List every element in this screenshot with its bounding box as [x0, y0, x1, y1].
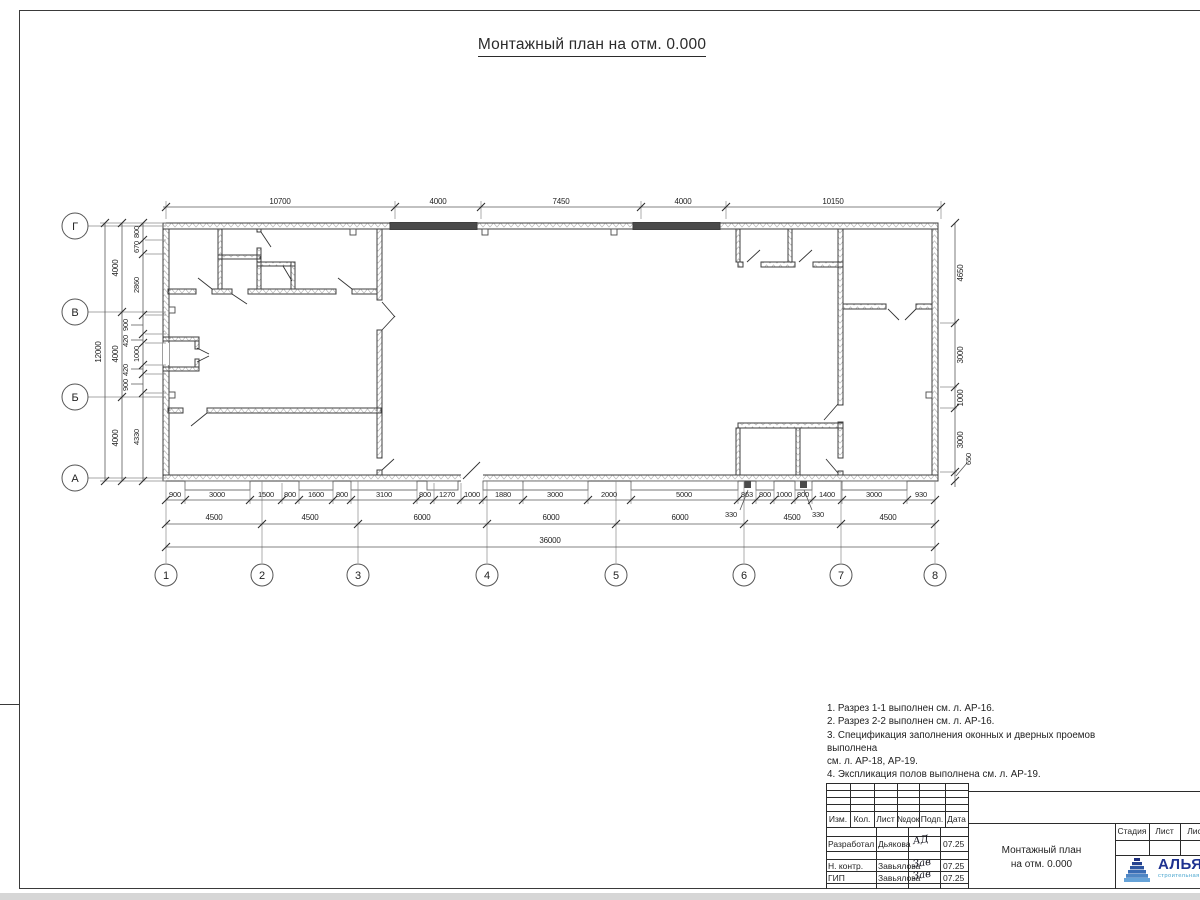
dim-label: 6000 [414, 513, 432, 522]
tb-line [826, 871, 968, 872]
dim-label: 863 [741, 490, 753, 499]
dim-label: 5000 [676, 490, 692, 499]
axis-label: 4 [484, 570, 490, 582]
column-marker [611, 229, 617, 235]
note-line: 1. Разрез 1-1 выполнен см. л. АР-16. [827, 702, 1117, 715]
dim-label: 1000 [776, 490, 792, 499]
dim-label: 900 [121, 379, 130, 391]
gate-opening [633, 223, 720, 230]
tb-sheets: Листов [1180, 826, 1200, 836]
tb-stage: Стадия [1115, 826, 1149, 836]
dim-label: 1270 [439, 490, 455, 499]
dim-label: 800 [132, 226, 141, 238]
logo-subtitle: строительная компания [1158, 873, 1200, 879]
tb-header-podp: Подп. [919, 814, 945, 824]
axis-label: Г [72, 221, 78, 233]
tb-role: ГИП [828, 873, 845, 883]
signature: АД [912, 834, 929, 847]
gate-opening [390, 223, 477, 230]
dim-label: 3000 [956, 346, 965, 364]
tb-header-list: Лист [874, 814, 897, 824]
dim-label: 4500 [302, 513, 320, 522]
dim-label: 420 [121, 364, 130, 376]
tb-name: Дьякова [878, 839, 910, 849]
axis-label: Б [71, 392, 78, 404]
dim-label: 10150 [822, 197, 844, 206]
column-marker [169, 307, 175, 313]
dim-label: 800 [336, 490, 348, 499]
dim-label: 4500 [880, 513, 898, 522]
dim-label: 12000 [94, 341, 103, 363]
column-marker [926, 392, 932, 398]
dim-label: 6000 [543, 513, 561, 522]
dim-label: 36000 [539, 536, 561, 545]
tb-date: 07.25 [943, 873, 964, 883]
tb-line [826, 827, 968, 828]
dim-label: 3000 [209, 490, 225, 499]
column-marker [482, 229, 488, 235]
dim-label: 1600 [308, 490, 324, 499]
dim-label: 1000 [464, 490, 480, 499]
tb-line [876, 827, 877, 889]
general-notes: 1. Разрез 1-1 выполнен см. л. АР-16. 2. … [827, 702, 1117, 782]
note-line: 2. Разрез 2-2 выполнен см. л. АР-16. [827, 715, 1117, 728]
tb-doc-title-line1: Монтажный план [968, 844, 1115, 858]
dim-label: 6000 [672, 513, 690, 522]
dim-label: 900 [121, 319, 130, 331]
column-marker [350, 229, 356, 235]
note-line: 3. Спецификация заполнения оконных и две… [827, 729, 1117, 756]
axis-label: 1 [163, 570, 169, 582]
tb-line [826, 859, 968, 860]
dim-label: 4650 [956, 264, 965, 282]
tb-doc-title: Монтажный план на отм. 0.000 [968, 844, 1115, 872]
column-marker [169, 392, 175, 398]
dim-label: 4000 [430, 197, 448, 206]
tb-line [826, 883, 968, 884]
dim-label: 4500 [784, 513, 802, 522]
dim-label: 2000 [601, 490, 617, 499]
dim-label: 3000 [547, 490, 563, 499]
dim-label: 420 [121, 335, 130, 347]
axis-label: В [71, 307, 78, 319]
tb-line [968, 791, 1200, 792]
tb-line [1115, 840, 1200, 841]
dim-label: 1000 [956, 389, 965, 407]
logo-triangle-icon [1122, 856, 1152, 886]
company-logo: АЛЬЯНС строительная компания [1122, 856, 1200, 886]
note-line: см. л. АР-18, АР-19. [827, 755, 1117, 768]
axis-label: 2 [259, 570, 265, 582]
dim-label: 2860 [132, 277, 141, 293]
axis-label: 5 [613, 570, 619, 582]
tb-header-kol: Кол. [850, 814, 874, 824]
tb-sheet: Лист [1149, 826, 1180, 836]
dim-label: 4000 [111, 259, 120, 277]
axis-label: 8 [932, 570, 938, 582]
dim-label: 670 [132, 241, 141, 253]
drawing-sheet: Монтажный план на отм. 0.000 [0, 0, 1200, 900]
dim-label: 800 [759, 490, 771, 499]
tb-role: Н. контр. [828, 861, 863, 871]
dim-label: 7450 [553, 197, 571, 206]
note-line: 4. Экспликация полов выполнена см. л. АР… [827, 768, 1117, 781]
tb-header-izm: Изм. [826, 814, 850, 824]
tb-line [826, 836, 968, 837]
dim-label: 10700 [269, 197, 291, 206]
dim-label: 650 [964, 453, 973, 465]
tb-date: 07.25 [943, 861, 964, 871]
door-leaves [191, 232, 916, 479]
axis-label: 7 [838, 570, 844, 582]
dim-label: 930 [915, 490, 927, 499]
dim-label: 4000 [675, 197, 693, 206]
tb-line [826, 851, 968, 852]
dim-label: 4000 [111, 429, 120, 447]
dim-label: 330 [812, 510, 824, 519]
walls-layer [163, 223, 938, 482]
wall-stub [744, 481, 751, 488]
tb-line [968, 783, 969, 889]
dim-label: 4000 [111, 345, 120, 363]
dim-label: 3000 [866, 490, 882, 499]
axis-labels: Г В Б А 1 2 3 4 5 6 7 8 [71, 221, 938, 582]
wall-stub [800, 481, 807, 488]
dim-label: 330 [725, 510, 737, 519]
axis-label: 3 [355, 570, 361, 582]
dim-label: 1880 [495, 490, 511, 499]
dim-label: 1000 [132, 346, 141, 362]
dim-label: 900 [169, 490, 181, 499]
tb-role: Разработал [828, 839, 874, 849]
dim-label: 4330 [132, 429, 141, 445]
axis-label: 6 [741, 570, 747, 582]
axis-label: А [71, 473, 79, 485]
dim-label: 800 [797, 490, 809, 499]
tb-line [826, 783, 827, 889]
dim-label: 4500 [206, 513, 224, 522]
logo-text: АЛЬЯНС [1158, 856, 1200, 873]
tb-header-ndok: №док [897, 814, 919, 824]
tb-header-data: Дата [945, 814, 968, 824]
tb-line [968, 823, 1200, 824]
dim-label: 800 [284, 490, 296, 499]
tb-line [940, 827, 941, 889]
dim-label: 3000 [956, 431, 965, 449]
dim-label: 1400 [819, 490, 835, 499]
dim-label: 1500 [258, 490, 274, 499]
dim-label: 800 [419, 490, 431, 499]
tb-doc-title-line2: на отм. 0.000 [968, 858, 1115, 872]
dim-label: 3100 [376, 490, 392, 499]
tb-date: 07.25 [943, 839, 964, 849]
windows-layer [169, 229, 932, 490]
axis-bubbles [62, 213, 946, 586]
